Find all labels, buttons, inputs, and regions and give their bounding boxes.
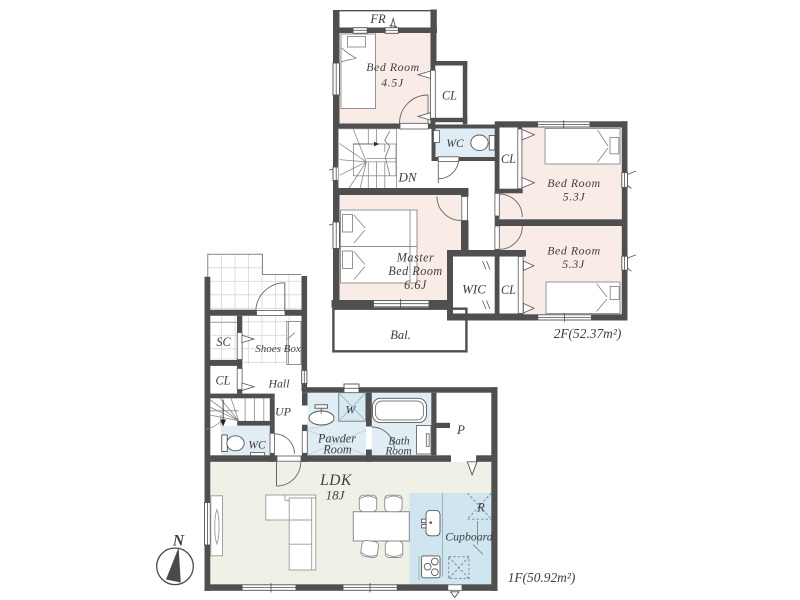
svg-text:WC: WC [248, 440, 266, 452]
svg-text:Shoes Box: Shoes Box [255, 343, 301, 355]
svg-text:5.3J: 5.3J [562, 257, 585, 271]
svg-text:LDK: LDK [319, 472, 352, 489]
svg-text:Hall: Hall [268, 377, 291, 391]
svg-text:Bed Room: Bed Room [366, 60, 420, 74]
svg-text:W: W [346, 403, 357, 417]
svg-text:UP: UP [275, 405, 292, 419]
svg-text:R: R [476, 501, 485, 515]
svg-text:1F(50.92m²): 1F(50.92m²) [508, 570, 576, 585]
svg-text:WC: WC [446, 138, 464, 150]
svg-text:CL: CL [501, 283, 516, 297]
svg-text:Bed Room: Bed Room [547, 244, 601, 258]
svg-text:Bed Room: Bed Room [547, 176, 601, 190]
svg-text:4.5J: 4.5J [381, 76, 404, 90]
svg-text:Bed Room: Bed Room [388, 264, 442, 278]
svg-text:CL: CL [216, 374, 231, 388]
svg-text:Master: Master [396, 251, 435, 265]
svg-text:Bal.: Bal. [390, 328, 410, 342]
svg-text:Room: Room [384, 446, 411, 458]
svg-text:P: P [456, 422, 465, 437]
svg-text:5.3J: 5.3J [563, 190, 586, 204]
svg-text:DN: DN [397, 170, 417, 185]
svg-text:WIC: WIC [462, 282, 486, 297]
svg-text:SC: SC [216, 335, 231, 349]
svg-text:Cupboard: Cupboard [445, 530, 493, 544]
svg-text:2F(52.37m²): 2F(52.37m²) [554, 326, 622, 341]
svg-text:FR: FR [369, 12, 386, 26]
svg-text:CL: CL [442, 89, 457, 103]
svg-text:CL: CL [501, 152, 516, 166]
svg-text:18J: 18J [326, 488, 346, 503]
svg-text:Room: Room [322, 443, 352, 457]
svg-text:6.6J: 6.6J [404, 278, 427, 292]
svg-text:N: N [172, 533, 185, 550]
